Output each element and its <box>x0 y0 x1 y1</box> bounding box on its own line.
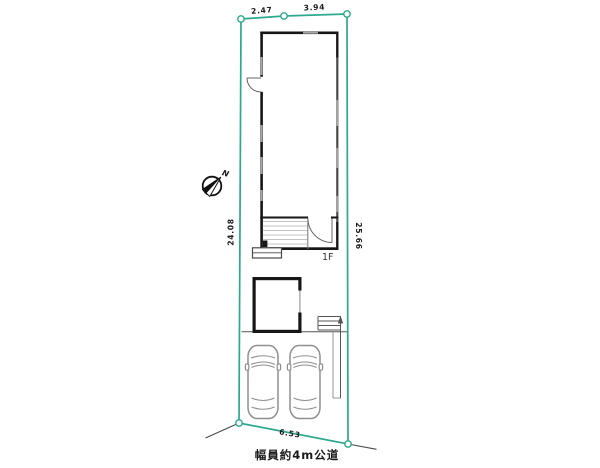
dim-right-side: 25.66 <box>354 222 363 250</box>
exterior-steps <box>318 317 341 331</box>
site-plan: N 2.47 3.94 24.08 25.66 6.53 1F 幅員約4m公道 <box>0 0 600 468</box>
road-width-label: 幅員約4m公道 <box>255 448 339 462</box>
side-door-arc <box>247 78 261 92</box>
staircase <box>263 219 308 250</box>
approach-path <box>333 332 341 398</box>
main-building <box>247 32 338 251</box>
entrance-door-arc <box>308 219 332 243</box>
car <box>245 346 280 419</box>
road-edge-line-left <box>206 423 240 438</box>
dim-bottom: 6.53 <box>279 427 302 439</box>
north-compass-icon: N <box>203 168 231 196</box>
road-edge-line-right <box>348 444 377 449</box>
approach-arrow <box>338 316 343 399</box>
dim-top-right: 3.94 <box>303 3 325 13</box>
dim-top-left: 2.47 <box>251 5 273 16</box>
north-label: N <box>221 168 230 179</box>
site-plan-drawing: N 2.47 3.94 24.08 25.66 6.53 1F 幅員約4m公道 <box>0 0 600 468</box>
garage <box>253 277 303 333</box>
floor-label: 1F <box>322 252 334 263</box>
car <box>287 346 322 419</box>
dim-left-side: 24.08 <box>227 218 236 246</box>
stair-newel <box>263 241 268 248</box>
entrance-porch <box>253 248 282 258</box>
